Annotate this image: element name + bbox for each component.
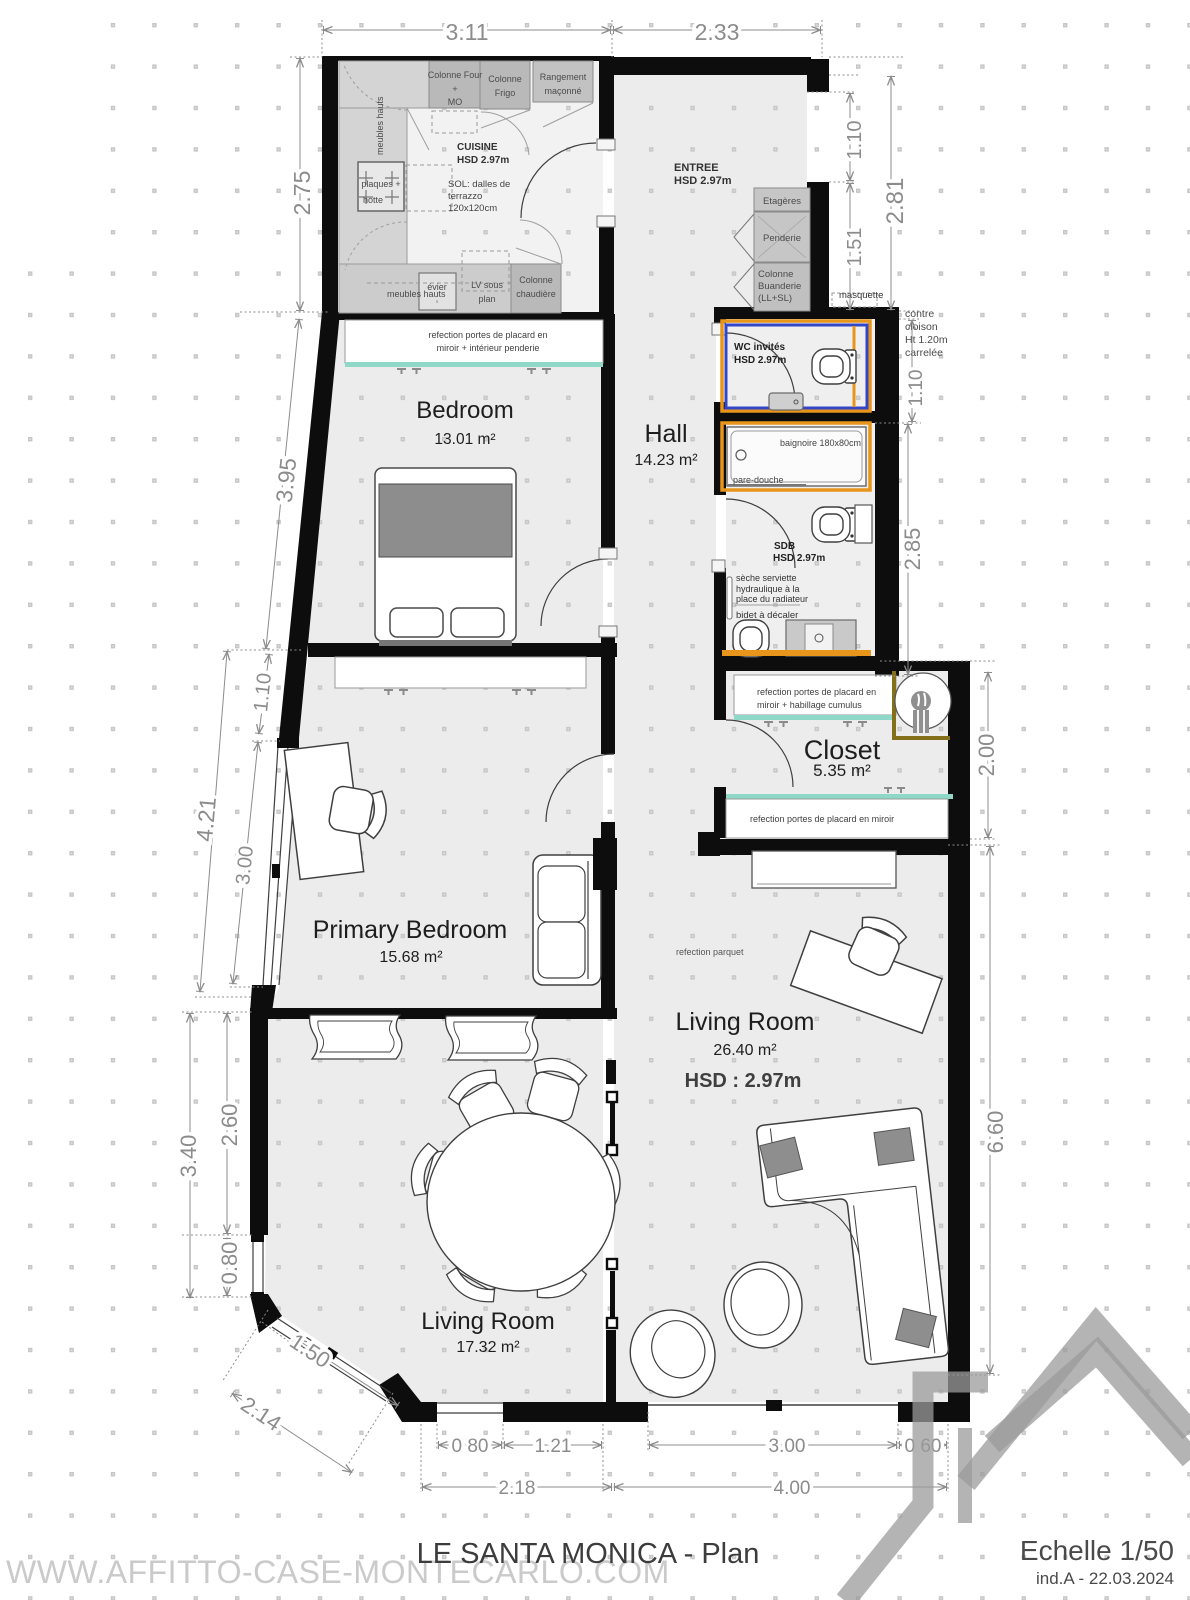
- svg-text:Living Room: Living Room: [676, 1008, 815, 1036]
- svg-text:meubles hauts: meubles hauts: [387, 289, 446, 299]
- svg-text:contre: contre: [905, 308, 934, 320]
- svg-text:terrazzo: terrazzo: [448, 191, 482, 202]
- svg-text:Rangement: Rangement: [540, 72, 587, 82]
- svg-text:sèche serviette: sèche serviette: [736, 573, 797, 583]
- svg-text:Colonne: Colonne: [488, 74, 522, 84]
- svg-text:meubles hauts: meubles hauts: [375, 96, 385, 155]
- svg-text:(LL+SL): (LL+SL): [758, 293, 792, 304]
- svg-text:Etagères: Etagères: [763, 196, 801, 207]
- svg-text:place du radiateur: place du radiateur: [736, 594, 808, 604]
- svg-text:CUISINE: CUISINE: [457, 142, 498, 153]
- svg-text:refection portes de placard en: refection portes de placard en: [428, 330, 547, 340]
- svg-text:Colonne: Colonne: [758, 269, 793, 280]
- svg-text:3.40: 3.40: [176, 1135, 201, 1178]
- svg-text:baignoire 180x80cm: baignoire 180x80cm: [780, 438, 861, 448]
- svg-text:Colonne Four: Colonne Four: [428, 70, 483, 80]
- svg-text:26.40 m²: 26.40 m²: [713, 1042, 777, 1059]
- svg-text:Ht 1.20m: Ht 1.20m: [905, 334, 948, 346]
- svg-text:13.01 m²: 13.01 m²: [434, 431, 495, 448]
- svg-text:plaques +: plaques +: [361, 179, 400, 189]
- svg-text:3.11: 3.11: [445, 19, 488, 45]
- svg-text:maçonné: maçonné: [544, 86, 581, 96]
- svg-text:carrelée: carrelée: [905, 347, 943, 359]
- svg-text:3.00: 3.00: [232, 845, 258, 886]
- svg-text:hotte: hotte: [363, 195, 383, 205]
- svg-text:1.10: 1.10: [250, 672, 276, 713]
- svg-text:1.10: 1.10: [844, 121, 866, 160]
- svg-text:MO: MO: [448, 97, 463, 107]
- svg-text:LE SANTA MONICA - Plan: LE SANTA MONICA - Plan: [417, 1538, 760, 1570]
- svg-text:2.33: 2.33: [695, 19, 740, 45]
- svg-text:HSD 2.97m: HSD 2.97m: [773, 553, 825, 564]
- svg-text:Echelle 1/50: Echelle 1/50: [1020, 1535, 1174, 1566]
- svg-text:14.23 m²: 14.23 m²: [634, 452, 698, 469]
- svg-text:4.00: 4.00: [774, 1478, 811, 1499]
- svg-text:hydraulique à la: hydraulique à la: [736, 584, 800, 594]
- svg-text:120x120cm: 120x120cm: [448, 203, 497, 214]
- svg-text:SOL: dalles de: SOL: dalles de: [448, 179, 510, 190]
- svg-text:5.35 m²: 5.35 m²: [813, 761, 871, 780]
- svg-text:Primary Bedroom: Primary Bedroom: [313, 916, 508, 944]
- svg-text:Frigo: Frigo: [495, 88, 516, 98]
- svg-text:Hall: Hall: [644, 420, 687, 448]
- svg-text:0 80: 0 80: [452, 1436, 489, 1457]
- svg-text:1.10: 1.10: [906, 370, 927, 407]
- svg-text:miroir + habillage cumulus: miroir + habillage cumulus: [757, 700, 862, 710]
- svg-text:1.21: 1.21: [535, 1436, 572, 1457]
- svg-text:chaudière: chaudière: [516, 289, 556, 299]
- svg-text:3.95: 3.95: [271, 457, 302, 504]
- svg-text:ENTREE: ENTREE: [674, 162, 719, 174]
- svg-text:15.68 m²: 15.68 m²: [379, 949, 443, 966]
- svg-text:3.00: 3.00: [769, 1436, 806, 1457]
- svg-text:2.00: 2.00: [974, 734, 999, 777]
- svg-text:0.80: 0.80: [217, 1242, 242, 1285]
- svg-text:plan: plan: [478, 294, 495, 304]
- svg-text:2.85: 2.85: [900, 528, 925, 571]
- svg-text:Colonne: Colonne: [519, 275, 553, 285]
- svg-text:Living Room: Living Room: [421, 1308, 554, 1335]
- svg-text:LV sous: LV sous: [471, 280, 503, 290]
- svg-text:SDB: SDB: [774, 541, 795, 552]
- svg-text:refection portes de placard en: refection portes de placard en: [757, 687, 876, 697]
- svg-text:6.60: 6.60: [983, 1111, 1008, 1154]
- svg-text:refection portes de placard en: refection portes de placard en miroir: [750, 814, 894, 824]
- svg-text:4.21: 4.21: [191, 796, 221, 843]
- svg-text:refection parquet: refection parquet: [676, 947, 744, 957]
- svg-text:HSD : 2.97m: HSD : 2.97m: [685, 1070, 802, 1092]
- svg-text:1.51: 1.51: [844, 228, 866, 267]
- svg-text:Penderie: Penderie: [763, 233, 801, 244]
- svg-text:HSD 2.97m: HSD 2.97m: [734, 355, 786, 366]
- svg-text:2.18: 2.18: [499, 1478, 536, 1499]
- svg-text:2.81: 2.81: [882, 178, 909, 225]
- svg-text:ind.A - 22.03.2024: ind.A - 22.03.2024: [1036, 1569, 1174, 1588]
- svg-text:Bedroom: Bedroom: [416, 397, 513, 424]
- svg-text:2.60: 2.60: [217, 1104, 242, 1147]
- svg-text:+: +: [452, 84, 457, 94]
- svg-text:HSD 2.97m: HSD 2.97m: [674, 175, 732, 187]
- svg-text:pare-douche: pare-douche: [733, 475, 784, 485]
- svg-text:cloison: cloison: [905, 321, 938, 333]
- svg-text:2.75: 2.75: [289, 171, 315, 216]
- svg-text:Buanderie: Buanderie: [758, 281, 801, 292]
- svg-text:masquette: masquette: [839, 290, 883, 301]
- svg-text:miroir + intérieur penderie: miroir + intérieur penderie: [437, 343, 540, 353]
- svg-text:HSD 2.97m: HSD 2.97m: [457, 155, 509, 166]
- svg-text:17.32 m²: 17.32 m²: [456, 1339, 520, 1356]
- svg-text:WC invités: WC invités: [734, 342, 786, 353]
